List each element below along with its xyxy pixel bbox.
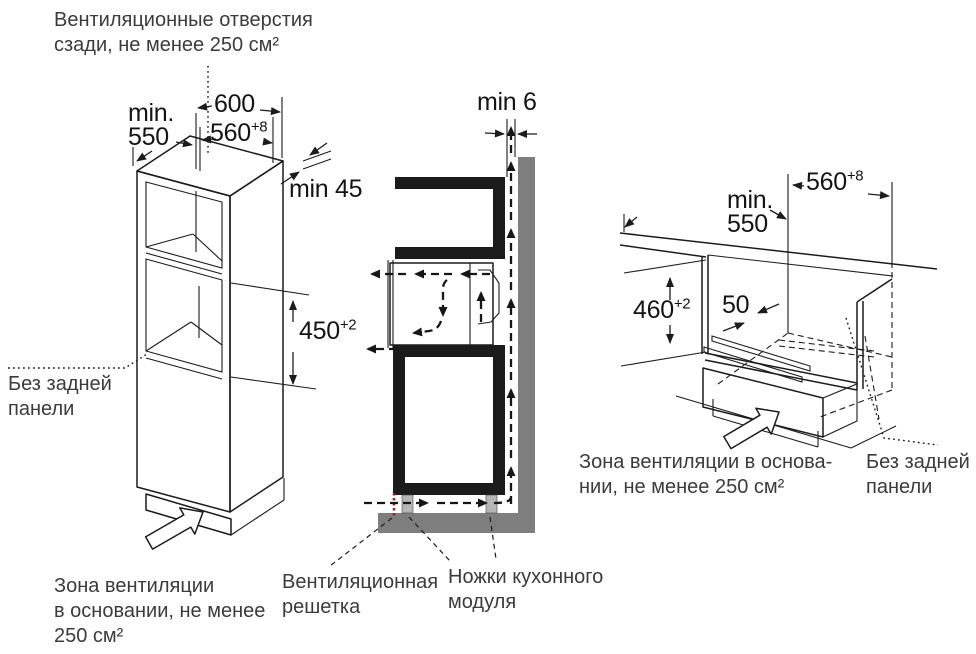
dim-450: 450+2 (299, 319, 356, 343)
upper-compartment-opening (146, 182, 222, 268)
note-line: решетка (282, 595, 438, 620)
note-line: Зона вентиляции (54, 574, 265, 599)
platform-front-edges (705, 353, 857, 390)
right-panel-edges (857, 279, 892, 390)
note-module-feet: Ножки кухонного модуля (448, 565, 603, 615)
dim-460: 460+2 (633, 298, 690, 322)
niche-top-edge (708, 255, 893, 276)
shelf-top-edges (146, 234, 222, 274)
wall (518, 157, 535, 513)
dim-50-arrow-b (723, 323, 744, 331)
niche-floor-edges (146, 322, 222, 379)
dim-50-arrow-a (758, 304, 779, 313)
base-airflow-arrow-icon (146, 508, 203, 549)
note-line: панели (8, 397, 112, 422)
lower-cabinet-box (393, 345, 505, 495)
niche-opening (146, 259, 222, 372)
cabinet-front-face (137, 171, 230, 512)
note-line: 250 см² (54, 624, 265, 649)
countertop-edges (620, 233, 937, 269)
no-back-panel-leader (8, 354, 147, 368)
drawer-side (823, 384, 857, 437)
note-line: модуля (448, 590, 603, 615)
oven-installation-diagram: Вентиляционные отверстия сзади, не менее… (0, 0, 976, 654)
left-panel-edges (702, 255, 708, 354)
dim-50: 50 (722, 293, 749, 317)
dim-600-arrow-left (198, 106, 212, 108)
dim-min-550-right: min. 550 (727, 188, 773, 236)
grille-label-leader (330, 518, 392, 566)
note-line: Зона вентиляции в основа- (579, 450, 832, 475)
note-line: Без задней (866, 450, 970, 475)
note-line: нии, не менее 250 см² (579, 475, 832, 500)
note-no-back-panel-left: Без задней панели (8, 372, 112, 422)
dim-45-edge-lines (303, 151, 331, 169)
dim-560-right: 560+8 (806, 170, 863, 194)
note-line: Вентиляционная (282, 570, 438, 595)
cabinet-side-face (230, 161, 283, 512)
upper-cabinet-top-panel (395, 177, 505, 189)
note-line: сзади, не менее 250 см² (54, 33, 313, 58)
dim-550r-arrow-b (625, 217, 637, 227)
note-line: в основании, не менее (54, 599, 265, 624)
dim-600: 600 (214, 92, 255, 116)
floor (378, 513, 535, 533)
note-base-ventilation-right: Зона вентиляции в основа- нии, не менее … (579, 450, 832, 500)
note-line: панели (866, 475, 970, 500)
note-no-back-panel-right: Без задней панели (866, 450, 970, 500)
dim-min-6: min 6 (477, 90, 537, 114)
dim-min-45: min 45 (289, 177, 362, 201)
note-line: Ножки кухонного (448, 565, 603, 590)
note-base-ventilation-left: Зона вентиляции в основании, не менее 25… (54, 574, 265, 649)
dim-560-left: 560+8 (210, 121, 267, 145)
dim-6-arrow-left (485, 133, 504, 134)
dim-600-arrow-right (260, 110, 280, 112)
note-line: Без задней (8, 372, 112, 397)
note-line: Вентиляционные отверстия (54, 8, 313, 33)
dim-560r-arrow-left (793, 185, 804, 186)
floor-lines (676, 396, 896, 448)
appliance-outline (390, 263, 493, 345)
dim-min-550-left: min. 550 (128, 101, 174, 149)
upper-cabinet-back-panel (493, 177, 505, 259)
note-ventilation-grille: Вентиляционная решетка (282, 570, 438, 620)
dim-550-arrow-a (137, 151, 152, 161)
upper-cabinet-bottom-panel (395, 247, 505, 259)
note-rear-ventilation: Вентиляционные отверстия сзади, не менее… (54, 8, 313, 58)
dim-560r-arrow-right (868, 194, 889, 196)
